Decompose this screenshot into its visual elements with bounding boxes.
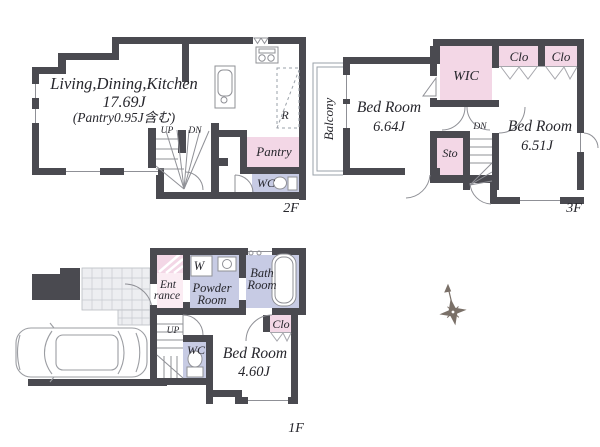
entrance-label-2: rance [154, 290, 180, 302]
fridge-label: R [280, 108, 289, 122]
floor-plan-page: Living,Dining,Kitchen 17.69J (Pantry0.95… [0, 0, 600, 447]
bedroom1-label: Bed Room [357, 99, 421, 116]
wc-label-2f: WC [257, 176, 276, 190]
washer-label: W [194, 259, 206, 273]
toilet-icon [288, 177, 297, 190]
car-icon [16, 323, 147, 382]
sto-label: Sto [442, 146, 457, 160]
up-label-1f: UP [167, 326, 180, 336]
balcony-label: Balcony [321, 97, 336, 140]
clo1-label: Clo [510, 49, 529, 64]
up-label-2f: UP [161, 126, 174, 136]
door-triangle [423, 78, 436, 96]
floor-label-3f: 3F [565, 201, 582, 216]
bedroom-1f-size: 4.60J [238, 364, 270, 380]
dn-label-3f: DN [472, 122, 487, 132]
dn-label-2f: DN [187, 126, 202, 136]
pantry-label: Pantry [255, 144, 292, 159]
floor-plan-2f: Living,Dining,Kitchen 17.69J (Pantry0.95… [32, 37, 306, 216]
folding-door-marks [499, 67, 577, 80]
floor-plan-canvas: Living,Dining,Kitchen 17.69J (Pantry0.95… [0, 0, 600, 447]
compass-icon [441, 285, 465, 324]
bedroom-1f-label: Bed Room [223, 345, 287, 362]
kitchen-sink-icon [218, 70, 232, 96]
wic-label: WIC [453, 69, 479, 84]
wc-1f-label: WC [187, 343, 206, 357]
bath-label-2: Room [246, 278, 276, 292]
entrance-porch [82, 268, 152, 325]
ldk-note: (Pantry0.95J含む) [73, 110, 176, 125]
door-arc [235, 175, 253, 192]
bedroom1-size: 6.64J [373, 119, 405, 135]
clo2-label: Clo [552, 49, 571, 64]
floor-plan-3f: Balcony Bed Room 6.64J WIC Clo Clo Sto D… [313, 39, 598, 216]
bedroom2-label: Bed Room [508, 118, 572, 135]
floor-plan-1f: Ent rance W Powder Room Bath Room Clo WC… [16, 248, 306, 436]
clo-1f-marks [270, 333, 291, 342]
ldk-size: 17.69J [102, 94, 146, 111]
ldk-label: Living,Dining,Kitchen [49, 74, 198, 93]
clo-1f-label: Clo [272, 317, 289, 331]
floor-label-2f: 2F [283, 201, 299, 216]
floor-label-1f: 1F [288, 421, 304, 436]
powder-label-2: Room [196, 293, 226, 307]
bedroom2-size: 6.51J [521, 138, 553, 154]
